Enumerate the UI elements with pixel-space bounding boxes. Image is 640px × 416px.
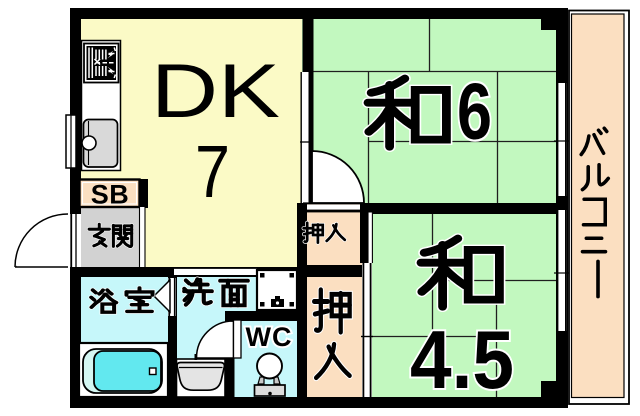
svg-text:SB: SB	[91, 180, 130, 210]
svg-text:7: 7	[195, 130, 230, 213]
svg-text:4.5: 4.5	[410, 313, 514, 406]
svg-text:6: 6	[457, 67, 492, 156]
svg-text:DK: DK	[151, 49, 280, 134]
svg-text:WC: WC	[246, 322, 293, 352]
